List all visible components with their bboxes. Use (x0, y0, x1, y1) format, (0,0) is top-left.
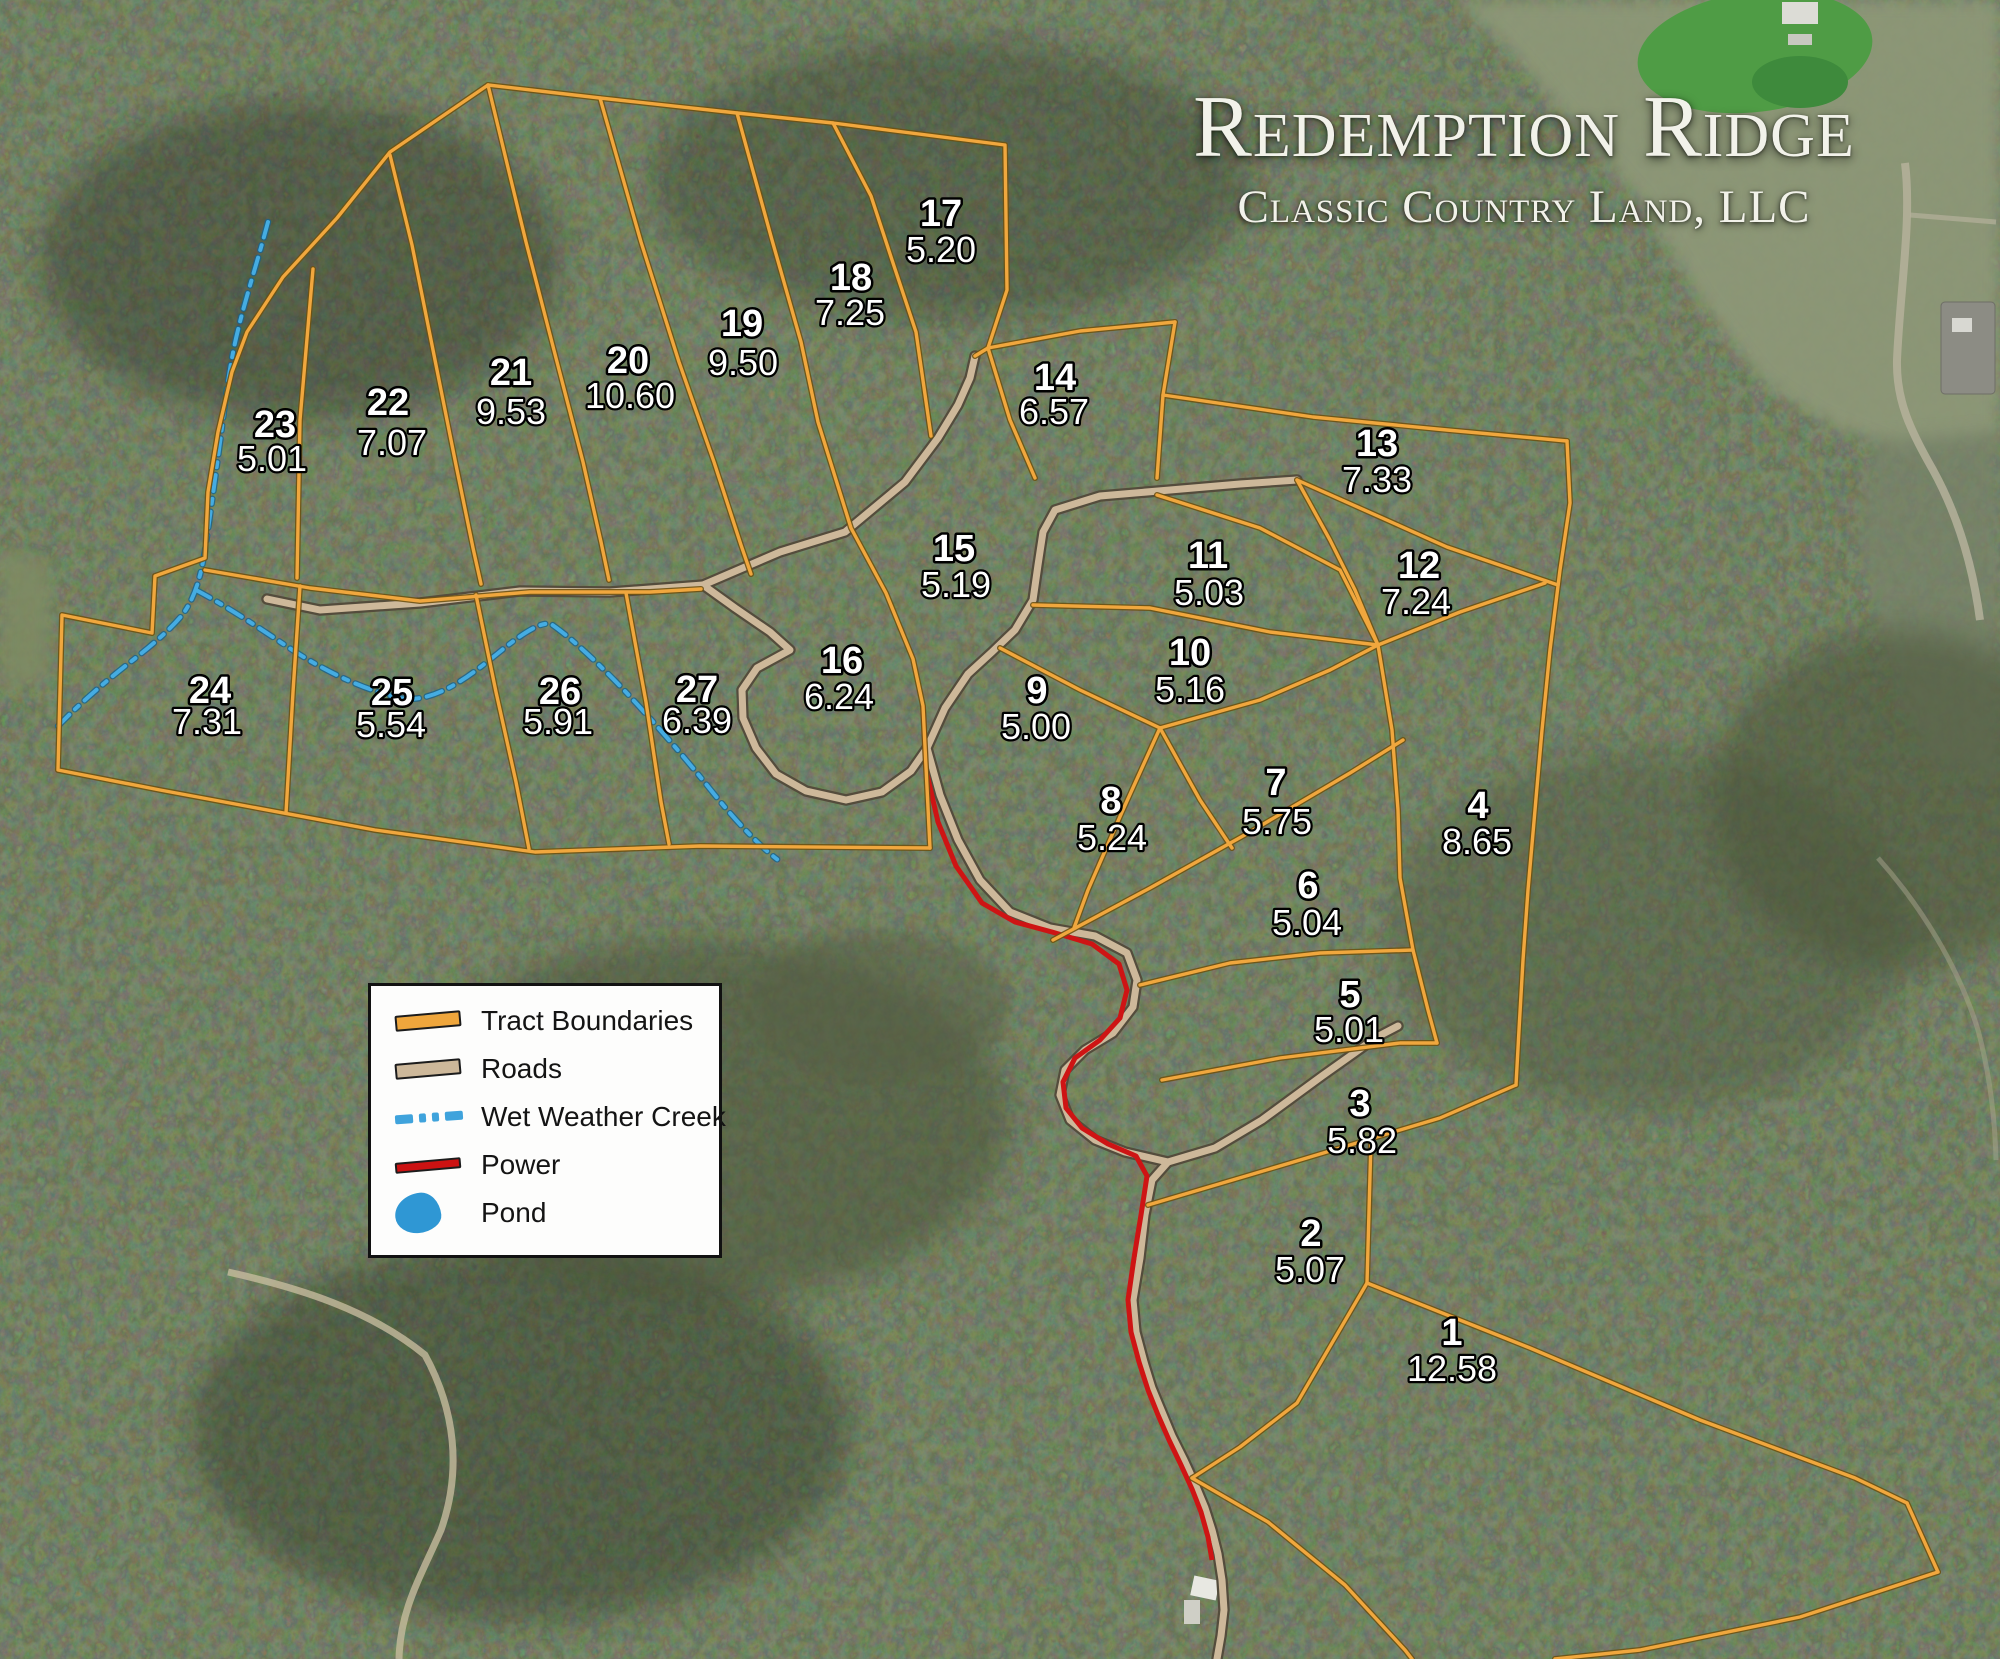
tract-acreage: 5.75 (1242, 801, 1312, 842)
green-pond-shadow (1752, 56, 1848, 108)
tract-acreage: 5.16 (1155, 669, 1225, 710)
tract-acreage: 7.33 (1342, 459, 1412, 500)
barn-building (1941, 302, 1995, 394)
tract-acreage: 5.04 (1272, 902, 1342, 943)
clearing (750, 930, 1010, 1080)
tract-acreage: 5.19 (921, 564, 991, 605)
farm-building (1788, 34, 1812, 45)
legend-item-wet-weather-creek: Wet Weather Creek (395, 1093, 719, 1141)
legend-label: Roads (481, 1053, 562, 1085)
tract-acreage: 5.24 (1077, 817, 1147, 858)
tract-acreage: 6.57 (1019, 391, 1089, 432)
tract-number: 7 (1265, 762, 1286, 804)
tract-acreage: 6.24 (804, 676, 874, 717)
legend-label: Wet Weather Creek (481, 1101, 726, 1133)
tract-acreage: 5.01 (1314, 1009, 1384, 1050)
field-left (0, 548, 52, 692)
tract-number: 6 (1297, 865, 1318, 907)
tract-acreage: 9.53 (476, 391, 546, 432)
legend-item-tract-boundaries: Tract Boundaries (395, 997, 719, 1045)
tract-acreage: 5.82 (1327, 1120, 1397, 1161)
legend-label: Tract Boundaries (481, 1005, 693, 1037)
tract-number: 11 (1188, 535, 1228, 577)
legend-label: Pond (481, 1197, 546, 1229)
tract-acreage: 5.07 (1275, 1249, 1345, 1290)
tract-acreage: 8.65 (1442, 821, 1512, 862)
tract-acreage: 5.20 (906, 229, 976, 270)
tract-acreage: 5.91 (523, 701, 593, 742)
tract-number: 22 (367, 382, 409, 424)
tract-acreage: 7.31 (172, 701, 242, 742)
tract-acreage: 7.07 (357, 422, 427, 463)
aerial-background (0, 0, 2000, 1659)
tract-acreage: 7.25 (815, 292, 885, 333)
forest-shade (650, 40, 1250, 320)
legend-item-power: Power (395, 1141, 719, 1189)
legend-item-roads: Roads (395, 1045, 719, 1093)
legend-item-pond: Pond (395, 1189, 719, 1237)
tract-acreage: 6.39 (662, 700, 732, 741)
farm-building (1782, 2, 1818, 24)
tract-acreage: 12.58 (1407, 1348, 1497, 1389)
house-outbuilding (1184, 1600, 1200, 1624)
creek-swatch-icon (395, 1110, 463, 1124)
plat-map-svg: 112.58 25.07 35.82 48.65 55.01 65.04 75.… (0, 0, 2000, 1659)
tract-number: 3 (1349, 1083, 1370, 1125)
pond-swatch-icon (393, 1191, 443, 1236)
tract-acreage: 5.00 (1001, 706, 1071, 747)
tract-acreage: 7.24 (1381, 581, 1451, 622)
legend-box: Tract Boundaries Roads Wet Weather Creek… (368, 983, 722, 1258)
tract-number: 8 (1100, 780, 1121, 822)
plat-map-page: 112.58 25.07 35.82 48.65 55.01 65.04 75.… (0, 0, 2000, 1659)
power-swatch-icon (395, 1157, 462, 1174)
roads-swatch-icon (394, 1058, 461, 1080)
tract-acreage: 5.03 (1174, 572, 1244, 613)
tract-number: 10 (1169, 632, 1211, 674)
tract-number: 21 (490, 352, 532, 394)
legend-label: Power (481, 1149, 560, 1181)
tract-boundaries-swatch-icon (394, 1010, 461, 1032)
tract-number: 19 (721, 303, 763, 345)
tract-acreage: 5.01 (237, 438, 307, 479)
tract-acreage: 5.54 (356, 704, 426, 745)
tract-acreage: 10.60 (585, 375, 675, 416)
barn-roof-detail (1952, 318, 1972, 332)
tract-acreage: 9.50 (708, 342, 778, 383)
